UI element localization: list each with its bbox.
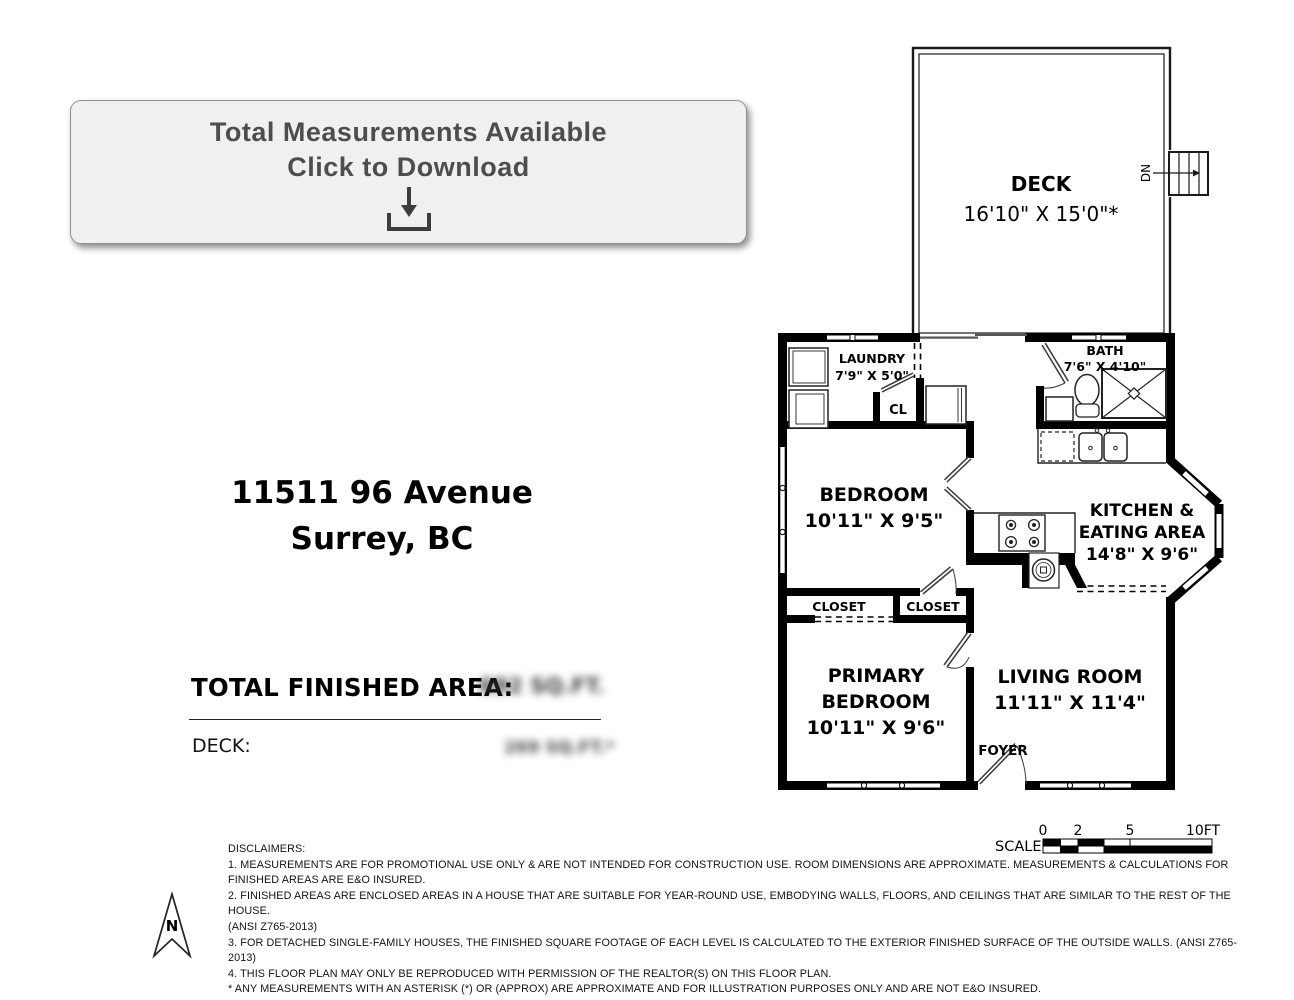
closet-right-label: CLOSET <box>906 599 960 614</box>
address-line1: 11511 96 Avenue <box>182 470 582 516</box>
scale-tick-10: 10FT <box>1186 823 1221 839</box>
closet-left-label: CLOSET <box>812 599 866 614</box>
download-icon <box>384 185 434 233</box>
deck-stairs <box>1153 152 1208 195</box>
scale-label: SCALE <box>995 839 1042 855</box>
download-button-line1: Total Measurements Available <box>71 117 746 148</box>
laundry-room-dims: 7'9" X 5'0" <box>835 368 909 383</box>
scale-bar: SCALE 0 2 5 10FT <box>985 818 1225 858</box>
bath-fixtures <box>1046 369 1166 421</box>
stairs-dn-label: DN <box>1139 164 1153 182</box>
scale-tick-2: 2 <box>1074 823 1083 839</box>
disclaimers-text: DISCLAIMERS: 1. MEASUREMENTS ARE FOR PRO… <box>228 842 1248 998</box>
north-arrow-icon: N <box>148 888 200 966</box>
laundry-room-label: LAUNDRY <box>839 351 906 366</box>
area-divider-line <box>189 719 601 720</box>
total-finished-area-value-blurred: 692 SQ.FT. <box>479 674 605 698</box>
primary-bedroom-dims: 10'11" X 9'6" <box>807 717 946 739</box>
primary-bedroom-label-line2: BEDROOM <box>821 691 930 713</box>
address-line2: Surrey, BC <box>182 516 582 562</box>
property-address: 11511 96 Avenue Surrey, BC <box>182 470 582 562</box>
kitchen-dims: 14'8" X 9'6" <box>1086 545 1198 565</box>
living-room-dims: 11'11" X 11'4" <box>994 692 1146 714</box>
floor-plan-page: Total Measurements Available Click to Do… <box>0 0 1294 1000</box>
kitchen-label-line1: KITCHEN & <box>1090 501 1195 521</box>
download-measurements-button[interactable]: Total Measurements Available Click to Do… <box>70 100 747 244</box>
scale-tick-0: 0 <box>1039 823 1048 839</box>
kitchen-label-line2: EATING AREA <box>1079 523 1206 543</box>
total-finished-area-label: TOTAL FINISHED AREA: <box>191 673 513 702</box>
primary-bedroom-label-line1: PRIMARY <box>828 665 925 687</box>
bedroom-dims: 10'11" X 9'5" <box>805 510 944 532</box>
scale-tick-5: 5 <box>1126 823 1135 839</box>
foyer-label: FOYER <box>978 743 1028 759</box>
living-room-label: LIVING ROOM <box>998 666 1143 688</box>
deck-area-label: DECK: <box>192 735 251 757</box>
download-button-line2: Click to Download <box>71 152 746 183</box>
floor-plan-drawing: DN <box>770 40 1294 810</box>
bath-room-label: BATH <box>1086 343 1123 358</box>
north-label: N <box>166 917 179 935</box>
scale-bar-cells <box>1043 839 1212 853</box>
deck-area-value-blurred: 269 SQ.FT.* <box>504 738 615 758</box>
bedroom-label: BEDROOM <box>819 484 928 506</box>
bath-room-dims: 7'6" X 4'10" <box>1064 359 1147 374</box>
deck-room-label: DECK <box>1011 172 1073 196</box>
deck-room-dims: 16'10" X 15'0"* <box>964 202 1119 226</box>
cl-closet-label: CL <box>889 403 907 418</box>
